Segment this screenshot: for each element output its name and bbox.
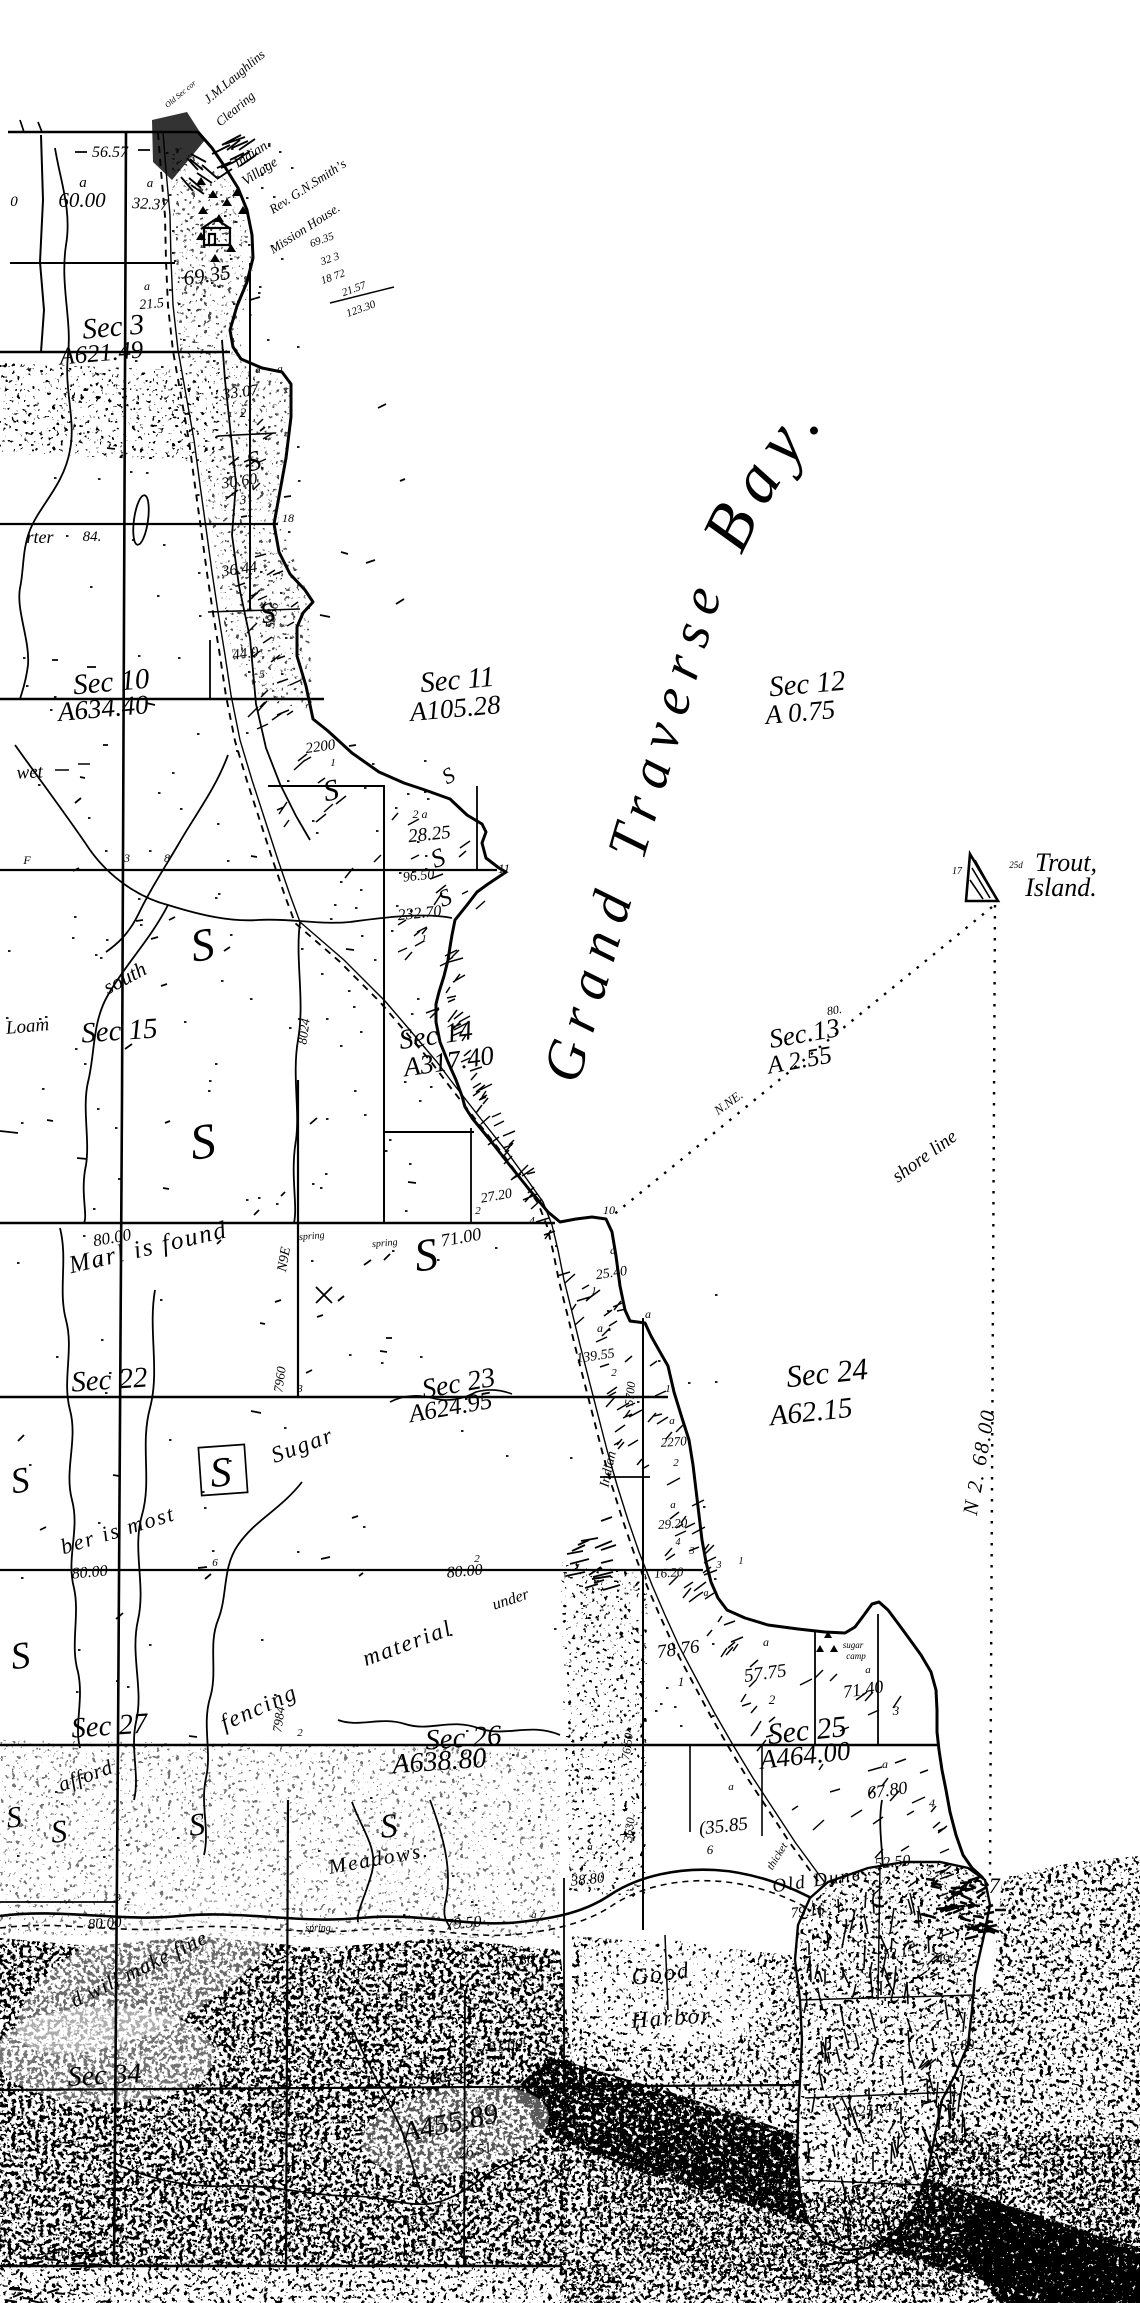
- svg-text:rter: rter: [27, 527, 55, 547]
- svg-text:84.: 84.: [83, 529, 102, 545]
- svg-text:8: 8: [164, 851, 170, 865]
- svg-text:camp: camp: [846, 1651, 866, 1661]
- svg-text:a: a: [597, 1321, 603, 1335]
- svg-text:1: 1: [739, 1556, 744, 1567]
- svg-text:a: a: [939, 1930, 944, 1941]
- svg-text:a: a: [255, 364, 261, 376]
- svg-text:56.57: 56.57: [92, 144, 129, 161]
- svg-text:3: 3: [689, 1546, 695, 1557]
- svg-text:a: a: [144, 279, 150, 293]
- svg-text:1: 1: [97, 1253, 103, 1267]
- svg-text:a: a: [610, 1243, 616, 1257]
- svg-text:2270: 2270: [660, 1433, 687, 1450]
- svg-text:a: a: [882, 1757, 888, 1771]
- svg-text:a: a: [277, 363, 283, 375]
- svg-text:Island.: Island.: [1024, 873, 1097, 902]
- svg-text:32.37: 32.37: [131, 195, 170, 214]
- svg-text:a 7: a 7: [531, 1909, 545, 1921]
- svg-text:4: 4: [529, 1215, 535, 1227]
- svg-text:4: 4: [676, 1537, 681, 1548]
- svg-text:7.: 7.: [989, 1873, 1006, 1898]
- svg-text:28.25: 28.25: [407, 822, 452, 847]
- svg-text:Sec 34: Sec 34: [67, 2058, 142, 2093]
- svg-text:80.00: 80.00: [87, 1915, 122, 1933]
- svg-text:A 0.75: A 0.75: [762, 694, 836, 730]
- svg-text:1: 1: [591, 1285, 597, 1297]
- svg-text:a: a: [763, 1635, 769, 1649]
- svg-text:10: 10: [603, 1203, 615, 1217]
- svg-text:spring: spring: [299, 1230, 325, 1243]
- svg-text:2: 2: [769, 1692, 776, 1707]
- svg-text:17: 17: [952, 866, 963, 877]
- svg-text:1: 1: [518, 1978, 524, 1990]
- svg-text:25d: 25d: [1009, 860, 1023, 870]
- svg-text:sugar: sugar: [843, 1640, 864, 1650]
- svg-text:3: 3: [114, 1892, 121, 1904]
- svg-text:5700: 5700: [622, 1381, 638, 1406]
- svg-text:21.5: 21.5: [139, 296, 165, 313]
- svg-text:2: 2: [475, 1205, 481, 1217]
- svg-text:3: 3: [716, 1560, 722, 1571]
- svg-text:spring: spring: [305, 1923, 331, 1934]
- svg-text:a: a: [147, 175, 154, 190]
- svg-text:6: 6: [707, 1842, 714, 1857]
- svg-text:F: F: [22, 853, 31, 867]
- svg-text:3: 3: [239, 492, 247, 507]
- svg-text:18: 18: [282, 511, 294, 525]
- svg-text:2: 2: [240, 405, 247, 420]
- svg-text:3: 3: [296, 1383, 303, 1395]
- svg-text:wet: wet: [16, 761, 44, 783]
- svg-text:60.00: 60.00: [58, 188, 106, 212]
- svg-text:Sec 15: Sec 15: [80, 1012, 159, 1049]
- svg-text:5: 5: [926, 1864, 932, 1878]
- svg-text:2 a: 2 a: [413, 807, 428, 821]
- svg-text:38.75: 38.75: [943, 2129, 975, 2147]
- svg-text:a: a: [645, 1307, 651, 1321]
- svg-text:1: 1: [421, 933, 427, 945]
- svg-text:1: 1: [678, 1674, 685, 1689]
- svg-text:Sec 33: Sec 33: [418, 2061, 475, 2090]
- svg-text:2: 2: [673, 1457, 679, 1469]
- svg-text:6: 6: [212, 1557, 218, 1569]
- svg-text:11: 11: [498, 861, 510, 876]
- svg-text:spring: spring: [372, 1237, 398, 1250]
- svg-text:2: 2: [611, 1367, 617, 1379]
- svg-text:29.20: 29.20: [658, 1515, 689, 1532]
- svg-text:2: 2: [474, 1553, 480, 1565]
- svg-text:2: 2: [297, 1727, 303, 1739]
- svg-text:a: a: [865, 1664, 871, 1676]
- svg-text:a: a: [704, 1588, 709, 1599]
- svg-text:2: 2: [991, 2064, 997, 2076]
- svg-text:3: 3: [892, 1703, 900, 1718]
- svg-text:Sec 27: Sec 27: [70, 1707, 150, 1744]
- svg-text:3: 3: [123, 851, 130, 865]
- svg-text:2: 2: [543, 2057, 549, 2071]
- svg-text:1: 1: [665, 1383, 671, 1395]
- svg-text:0: 0: [10, 194, 18, 210]
- svg-text:1: 1: [330, 757, 336, 769]
- svg-text:80.00: 80.00: [71, 1562, 108, 1582]
- svg-text:Loam: Loam: [4, 1014, 50, 1039]
- svg-text:a: a: [935, 2020, 940, 2031]
- svg-text:5: 5: [259, 667, 265, 681]
- svg-text:a: a: [728, 1781, 734, 1793]
- svg-text:80.: 80.: [826, 1002, 843, 1018]
- svg-text:a: a: [669, 1415, 675, 1427]
- svg-text:16.20: 16.20: [654, 1564, 685, 1581]
- svg-text:Sec 22: Sec 22: [70, 1361, 149, 1398]
- svg-text:1: 1: [955, 1977, 960, 1988]
- svg-text:4: 4: [929, 1796, 935, 1810]
- svg-text:a: a: [670, 1499, 676, 1511]
- svg-text:a: a: [587, 1841, 593, 1853]
